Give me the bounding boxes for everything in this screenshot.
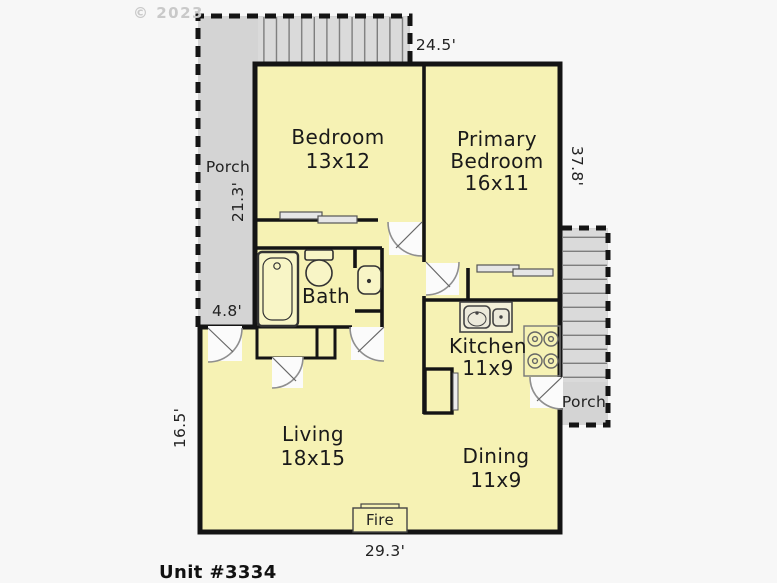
room-size: 11x9 <box>449 357 527 379</box>
room-name: Bedroom <box>291 125 384 149</box>
room-label-dining: Dining 11x9 <box>463 444 530 492</box>
room-label-living: Living 18x15 <box>281 422 346 470</box>
bedroom-closet-slider-icon <box>318 216 357 223</box>
bedroom-door-icon <box>388 222 422 256</box>
front-door-icon <box>208 326 242 362</box>
room-name: Bath <box>302 284 350 308</box>
dim-right-height: 37.8' <box>568 146 586 186</box>
dim-top-width: 24.5' <box>416 36 456 54</box>
hall-closet-door-icon <box>272 357 303 388</box>
room-label-kitchen: Kitchen 11x9 <box>449 335 527 379</box>
room-size: 11x9 <box>463 468 530 492</box>
bath-sink-icon <box>358 266 381 294</box>
bedroom-closet-slider-icon <box>280 212 322 219</box>
copyright-watermark: © 2023 <box>133 4 204 22</box>
room-label-bath: Bath <box>302 284 350 308</box>
stairs-right-icon <box>563 229 607 382</box>
room-size: 18x15 <box>281 446 346 470</box>
room-name: Primary Bedroom <box>435 128 559 172</box>
primary-closet-slider-icon <box>513 269 553 276</box>
dim-bottom-width: 29.3' <box>365 542 405 560</box>
dim-living-height: 16.5' <box>171 408 189 448</box>
kitchen-sink-icon <box>460 302 512 332</box>
toilet-icon <box>305 250 333 286</box>
porch-right-label: Porch <box>562 393 606 411</box>
stairs-top-icon <box>258 17 408 63</box>
hall-closet <box>257 327 335 358</box>
floor-plan-drawing <box>0 0 777 583</box>
bathtub-icon <box>258 252 298 326</box>
dim-porch-left-length: 21.3' <box>229 182 247 222</box>
room-name: Dining <box>463 444 530 468</box>
primary-bedroom-door-icon <box>426 262 459 295</box>
fireplace-label: Fire <box>366 511 394 529</box>
floor-plan: © 2023 Bedroom 13x12 Primary Bedroom 16x… <box>0 0 777 583</box>
room-label-primary-bedroom: Primary Bedroom 16x11 <box>435 128 559 194</box>
room-label-bedroom: Bedroom 13x12 <box>291 125 384 173</box>
room-size: 13x12 <box>291 149 384 173</box>
unit-number-title: Unit #3334 <box>159 562 277 583</box>
kitchen-porch-door-icon <box>530 377 563 409</box>
hall-living-door-icon <box>350 327 384 361</box>
room-name: Living <box>281 422 346 446</box>
room-size: 16x11 <box>435 172 559 194</box>
room-name: Kitchen <box>449 335 527 357</box>
dim-porch-left-width: 4.8' <box>212 302 242 320</box>
porch-left-label: Porch <box>206 158 250 176</box>
